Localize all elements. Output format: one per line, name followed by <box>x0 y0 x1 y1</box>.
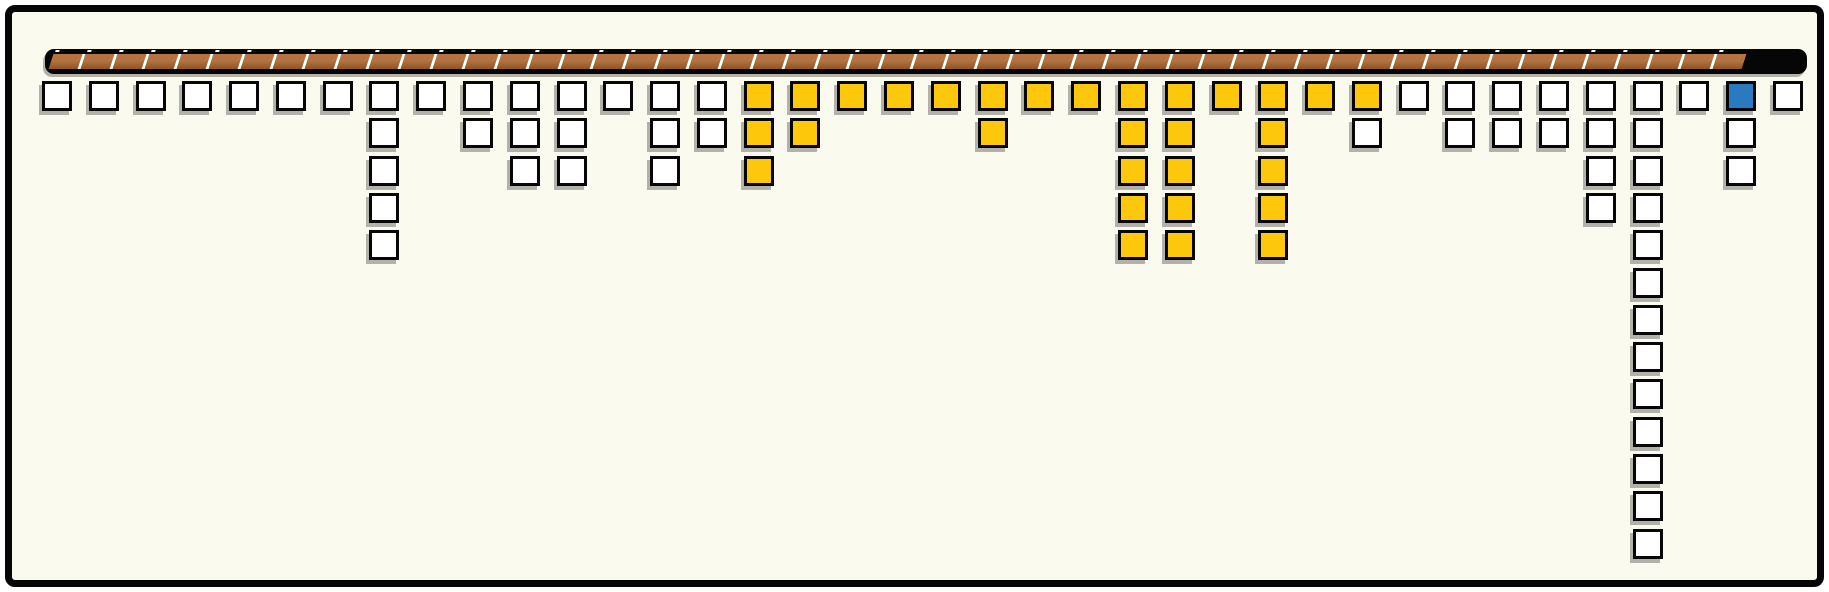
cell-c21-r2 <box>978 118 1008 148</box>
cell-c35-r6 <box>1633 268 1663 298</box>
cell-c11-r2 <box>510 118 540 148</box>
cell-c35-r10 <box>1633 417 1663 447</box>
cell-c3-r1 <box>136 81 166 111</box>
cell-c24-r1 <box>1118 81 1148 111</box>
cell-c12-r3 <box>557 156 587 186</box>
cell-c24-r4 <box>1118 193 1148 223</box>
cell-c35-r9 <box>1633 379 1663 409</box>
cell-c12-r2 <box>557 118 587 148</box>
cell-c16-r1 <box>744 81 774 111</box>
cell-c8-r5 <box>369 230 399 260</box>
cell-c24-r2 <box>1118 118 1148 148</box>
cell-c28-r1 <box>1305 81 1335 111</box>
cell-c24-r3 <box>1118 156 1148 186</box>
cell-c14-r1 <box>650 81 680 111</box>
cell-c8-r2 <box>369 118 399 148</box>
cell-c35-r3 <box>1633 156 1663 186</box>
cell-c19-r1 <box>884 81 914 111</box>
cell-c35-r12 <box>1633 491 1663 521</box>
unit-grid <box>12 12 1817 580</box>
cell-c38-r1 <box>1773 81 1803 111</box>
cell-c34-r4 <box>1586 193 1616 223</box>
cell-c31-r2 <box>1445 118 1475 148</box>
cell-c17-r2 <box>790 118 820 148</box>
cell-c32-r1 <box>1492 81 1522 111</box>
cell-c6-r1 <box>276 81 306 111</box>
cell-c21-r1 <box>978 81 1008 111</box>
cell-c29-r1 <box>1352 81 1382 111</box>
cell-c34-r2 <box>1586 118 1616 148</box>
cell-c35-r7 <box>1633 305 1663 335</box>
cell-c11-r1 <box>510 81 540 111</box>
cell-c15-r1 <box>697 81 727 111</box>
cell-c25-r3 <box>1165 156 1195 186</box>
cell-c35-r2 <box>1633 118 1663 148</box>
cell-c34-r1 <box>1586 81 1616 111</box>
cell-c20-r1 <box>931 81 961 111</box>
cell-c27-r4 <box>1258 193 1288 223</box>
cell-c11-r3 <box>510 156 540 186</box>
cell-c8-r4 <box>369 193 399 223</box>
cell-c7-r1 <box>323 81 353 111</box>
cell-c16-r3 <box>744 156 774 186</box>
cell-c25-r2 <box>1165 118 1195 148</box>
cell-c1-r1 <box>42 81 72 111</box>
cell-c26-r1 <box>1212 81 1242 111</box>
cell-c22-r1 <box>1024 81 1054 111</box>
cell-c24-r5 <box>1118 230 1148 260</box>
cell-c33-r1 <box>1539 81 1569 111</box>
cell-c35-r13 <box>1633 529 1663 559</box>
cell-c27-r3 <box>1258 156 1288 186</box>
figure-canvas <box>0 0 1829 592</box>
cell-c25-r4 <box>1165 193 1195 223</box>
cell-c37-r1 <box>1726 81 1756 111</box>
cell-c10-r1 <box>463 81 493 111</box>
cell-c16-r2 <box>744 118 774 148</box>
cell-c25-r1 <box>1165 81 1195 111</box>
cell-c25-r5 <box>1165 230 1195 260</box>
cell-c27-r1 <box>1258 81 1288 111</box>
cell-c35-r1 <box>1633 81 1663 111</box>
cell-c8-r3 <box>369 156 399 186</box>
cell-c30-r1 <box>1399 81 1429 111</box>
cell-c27-r5 <box>1258 230 1288 260</box>
cell-c33-r2 <box>1539 118 1569 148</box>
cell-c12-r1 <box>557 81 587 111</box>
cell-c32-r2 <box>1492 118 1522 148</box>
cell-c35-r11 <box>1633 454 1663 484</box>
cell-c35-r8 <box>1633 342 1663 372</box>
cell-c14-r2 <box>650 118 680 148</box>
cell-c17-r1 <box>790 81 820 111</box>
cell-c29-r2 <box>1352 118 1382 148</box>
cell-c10-r2 <box>463 118 493 148</box>
cell-c2-r1 <box>89 81 119 111</box>
cell-c4-r1 <box>182 81 212 111</box>
cell-c5-r1 <box>229 81 259 111</box>
cell-c35-r5 <box>1633 230 1663 260</box>
cell-c37-r2 <box>1726 118 1756 148</box>
cell-c18-r1 <box>837 81 867 111</box>
cell-c9-r1 <box>416 81 446 111</box>
cell-c15-r2 <box>697 118 727 148</box>
cell-c8-r1 <box>369 81 399 111</box>
cell-c13-r1 <box>603 81 633 111</box>
cell-c23-r1 <box>1071 81 1101 111</box>
canvas-frame <box>5 5 1824 587</box>
cell-c31-r1 <box>1445 81 1475 111</box>
cell-c34-r3 <box>1586 156 1616 186</box>
cell-c37-r3 <box>1726 156 1756 186</box>
cell-c14-r3 <box>650 156 680 186</box>
cell-c35-r4 <box>1633 193 1663 223</box>
cell-c27-r2 <box>1258 118 1288 148</box>
cell-c36-r1 <box>1679 81 1709 111</box>
